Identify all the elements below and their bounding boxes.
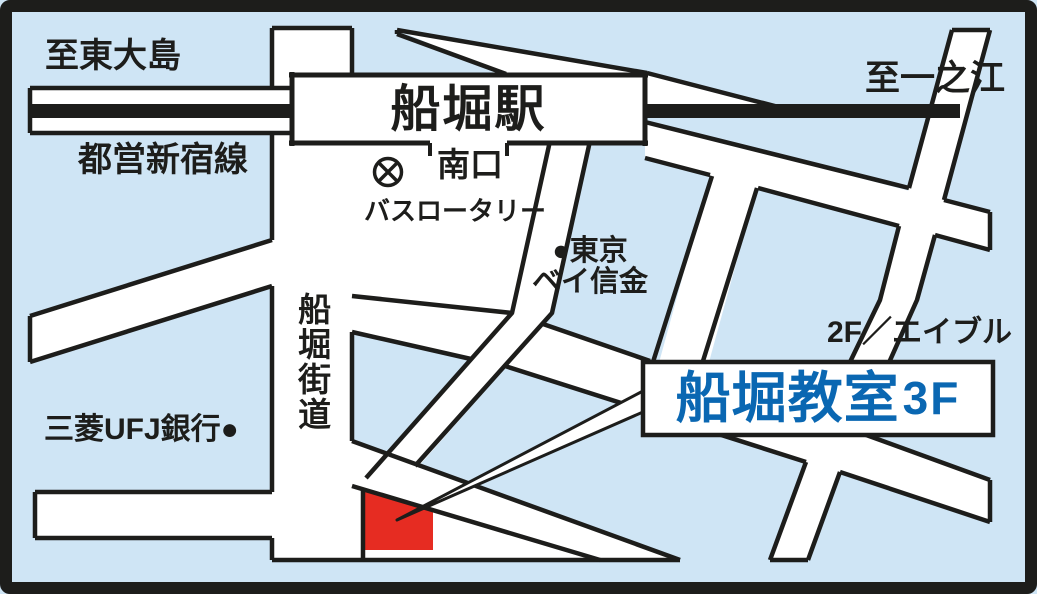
- label-funabori-kaido: 船堀街道: [294, 292, 329, 432]
- label-tokyo-bay-line1: ●東京: [552, 235, 628, 267]
- label-floor-note: 2F／エイブル: [790, 317, 1012, 349]
- access-map: 至東大島 都営新宿線 至一之江 船堀駅 南口 バスロータリー ●東京 ベイ信金 …: [0, 0, 1037, 594]
- label-mitsubishi-ufj-bank: 三菱UFJ銀行●: [44, 414, 239, 446]
- label-bus-rotary: バスロータリー: [364, 198, 546, 225]
- label-to-ichinoe: 至一之江: [865, 61, 1005, 98]
- label-funabori-classroom: 船堀教室3F: [643, 362, 993, 435]
- label-classroom-name: 船堀教室: [676, 370, 900, 428]
- label-classroom-floor: 3F: [903, 374, 961, 422]
- label-toei-shinjuku-line: 都営新宿線: [78, 143, 248, 179]
- label-tokyo-bay-line2: ベイ信金: [532, 266, 648, 298]
- label-to-higashi-ojima: 至東大島: [45, 39, 181, 75]
- label-funabori-station: 船堀駅: [292, 75, 645, 143]
- road-left-diagonal: [30, 240, 272, 362]
- label-tokyo-bay-shinkin: ●東京 ベイ信金: [520, 236, 660, 298]
- road-left-bottom: [35, 492, 272, 538]
- label-south-exit: 南口: [437, 148, 503, 183]
